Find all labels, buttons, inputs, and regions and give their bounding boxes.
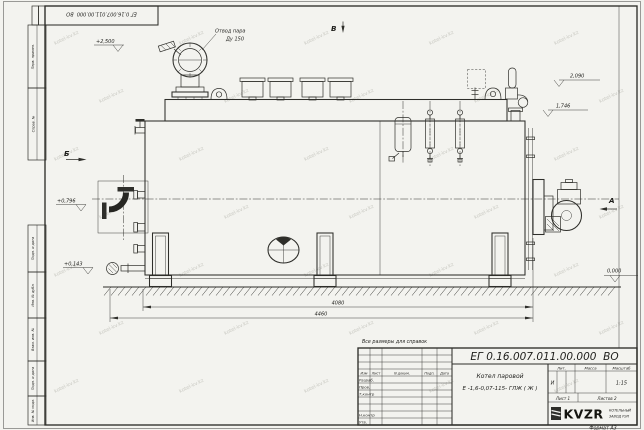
lit-value: И <box>551 381 555 387</box>
safety-valve-lever <box>509 68 517 88</box>
watermark-text: kotel-kv.kz <box>178 262 205 279</box>
support-foot <box>150 233 172 287</box>
watermark-text: kotel-kv.kz <box>598 320 625 337</box>
steam-outlet-callout: Отвод пара Ду 150 <box>202 29 245 51</box>
blowdown-valve <box>107 263 146 275</box>
company-logo: KVZR КОТЕЛЬНЫЙ ЗАВОД РЭП <box>551 407 631 422</box>
boiler-shell <box>145 121 525 275</box>
row-nkontr: Н.контр <box>359 413 375 418</box>
watermark-text: kotel-kv.kz <box>348 88 375 105</box>
side-column-label: Подп. и дата <box>31 237 35 260</box>
watermark-text: kotel-kv.kz <box>348 204 375 221</box>
watermark-text: kotel-kv.kz <box>553 262 580 279</box>
dimension-4080: 4080 <box>143 238 533 322</box>
row-tkontr: Т.контр <box>359 392 375 397</box>
product-name-1: Котел паровой <box>476 373 523 380</box>
logo-subtext-2: ЗАВОД РЭП <box>609 415 630 419</box>
row-razrab: Разраб. <box>359 378 374 383</box>
svg-text:2,090: 2,090 <box>570 74 584 80</box>
watermark-text: kotel-kv.kz <box>553 146 580 163</box>
svg-text:+2,500: +2,500 <box>96 39 115 45</box>
side-column-box: Инв. № подл. <box>28 396 46 425</box>
row-prov: Пров. <box>359 385 370 390</box>
svg-text:А: А <box>608 196 615 205</box>
watermark-text: kotel-kv.kz <box>303 30 330 47</box>
elevation-mark: 1,746 <box>543 104 588 117</box>
side-column-label: Перв. примен. <box>31 44 35 69</box>
side-column-label: Инв. № подл. <box>31 399 35 422</box>
watermark-text: kotel-kv.kz <box>553 30 580 47</box>
watermark-text: kotel-kv.kz <box>223 204 250 221</box>
level-gauges <box>389 101 465 166</box>
elevation-mark: +0,796 <box>56 199 86 212</box>
ground-hatch <box>104 288 615 296</box>
mass-header: Масса <box>584 365 597 370</box>
elevation-mark: 2,090 <box>554 74 600 87</box>
watermark-text: kotel-kv.kz <box>53 30 80 47</box>
side-column-label: Взам. инв. № <box>31 328 35 351</box>
manhole <box>268 237 300 264</box>
scale-header: Масштаб <box>612 365 631 370</box>
dim-4460-label: 4460 <box>315 312 328 318</box>
side-column-box: Взам. инв. № <box>28 318 46 361</box>
small-valve <box>135 119 145 135</box>
col-header-izm: Изм <box>361 372 368 376</box>
watermark-text: kotel-kv.kz <box>178 378 205 395</box>
watermark-text: kotel-kv.kz <box>428 262 455 279</box>
col-header-ndoc: N докум. <box>394 372 410 376</box>
watermark-text: kotel-kv.kz <box>223 320 250 337</box>
doc-number: ЕГ 0.16.007.011.00.000 ВО <box>470 351 618 363</box>
watermark-text: kotel-kv.kz <box>473 204 500 221</box>
wall-nozzle <box>134 245 145 254</box>
elevation-mark: +2,500 <box>94 39 124 52</box>
gas-burner <box>533 180 582 235</box>
watermark-text: kotel-kv.kz <box>348 320 375 337</box>
steam-outlet-label-2: Ду 150 <box>225 37 244 43</box>
steam-drum-platform <box>165 100 507 122</box>
watermark-text: kotel-kv.kz <box>428 30 455 47</box>
valve-handwheel <box>158 41 175 52</box>
elevation-mark: 0,000 <box>604 269 638 283</box>
wall-nozzle <box>134 223 145 233</box>
side-column-label: Подп. и дата <box>31 367 35 390</box>
product-name-2: Е -1,6-0,07-115- ГЛЖ ( Ж ) <box>463 386 538 392</box>
sheets-total: Листов 2 <box>596 396 617 401</box>
rear-wall-fittings <box>98 119 148 275</box>
drum-hatch-covers <box>240 78 353 100</box>
logo-subtext-1: КОТЕЛЬНЫЙ <box>609 408 631 413</box>
water-level-column <box>456 110 465 162</box>
col-header-podp: Подп. <box>424 372 434 376</box>
side-column-label: Инв. № дубл. <box>31 283 35 306</box>
watermark-text: kotel-kv.kz <box>598 88 625 105</box>
support-foot <box>489 233 511 287</box>
side-column-label: Справ. № <box>32 115 36 132</box>
stamp-doc-number: ЕГ 0.16.007.011.00.000 ВО <box>66 10 137 16</box>
logo-text: KVZR <box>564 407 604 422</box>
watermark-text: kotel-kv.kz <box>303 146 330 163</box>
side-column-box: Справ. № <box>28 88 46 160</box>
steam-outlet-label-1: Отвод пара <box>215 29 245 35</box>
drawing-sheet: kotel-kv.kzkotel-kv.kzkotel-kv.kzkotel-k… <box>0 0 644 430</box>
watermark-text: kotel-kv.kz <box>178 30 205 47</box>
title-block: Все размеры для справок Изм Лист N докум… <box>358 339 637 425</box>
svg-text:+0,143: +0,143 <box>64 262 83 268</box>
col-header-list: Лист <box>371 372 382 376</box>
side-column-box: Перв. примен. <box>28 25 46 88</box>
watermark-text: kotel-kv.kz <box>223 88 250 105</box>
side-column-box: Подп. и дата <box>28 361 46 396</box>
frame-side-columns: Перв. примен. Справ. № Подп. и дата Инв.… <box>28 25 46 425</box>
watermark-text: kotel-kv.kz <box>53 378 80 395</box>
drawing-canvas: kotel-kv.kzkotel-kv.kzkotel-kv.kzkotel-k… <box>0 0 644 430</box>
col-header-data: Дата <box>439 372 449 376</box>
dim-4080-label: 4080 <box>332 301 345 307</box>
side-column-box: Подп. и дата <box>28 225 46 272</box>
gauge-vessel <box>389 118 411 162</box>
watermark-text: kotel-kv.kz <box>303 378 330 395</box>
lit-header: Лит. <box>556 365 566 370</box>
svg-text:Б: Б <box>64 149 70 158</box>
rear-fitting-stub <box>509 108 523 121</box>
side-column-box: Инв. № дубл. <box>28 272 46 318</box>
support-foot <box>314 233 336 287</box>
boiler-side-view: Отвод пара Ду 150 <box>56 22 638 323</box>
svg-text:+0,796: +0,796 <box>57 199 76 205</box>
siphon-loop <box>518 98 528 108</box>
watermark-text: kotel-kv.kz <box>473 320 500 337</box>
watermark-text: kotel-kv.kz <box>98 88 125 105</box>
reference-note: Все размеры для справок <box>362 339 427 345</box>
svg-text:0,000: 0,000 <box>607 269 621 275</box>
view-arrow-v: В <box>331 22 345 34</box>
watermark-text: kotel-kv.kz <box>598 204 625 221</box>
watermark-text: kotel-kv.kz <box>98 320 125 337</box>
svg-text:В: В <box>331 24 337 33</box>
watermark-text: kotel-kv.kz <box>553 378 580 395</box>
wall-nozzle <box>134 191 145 200</box>
scale-value: 1:15 <box>616 381 627 387</box>
format-label: Формат А3 <box>589 425 616 430</box>
row-utv: Утв. <box>359 419 367 424</box>
logo-coil-icon <box>551 407 561 420</box>
watermark-text: kotel-kv.kz <box>428 378 455 395</box>
sheet-number: Лист 1 <box>555 396 570 401</box>
svg-text:1,746: 1,746 <box>556 104 570 110</box>
watermark-text: kotel-kv.kz <box>178 146 205 163</box>
steam-outlet-valve <box>158 41 208 100</box>
watermarks: kotel-kv.kzkotel-kv.kzkotel-kv.kzkotel-k… <box>53 30 625 395</box>
